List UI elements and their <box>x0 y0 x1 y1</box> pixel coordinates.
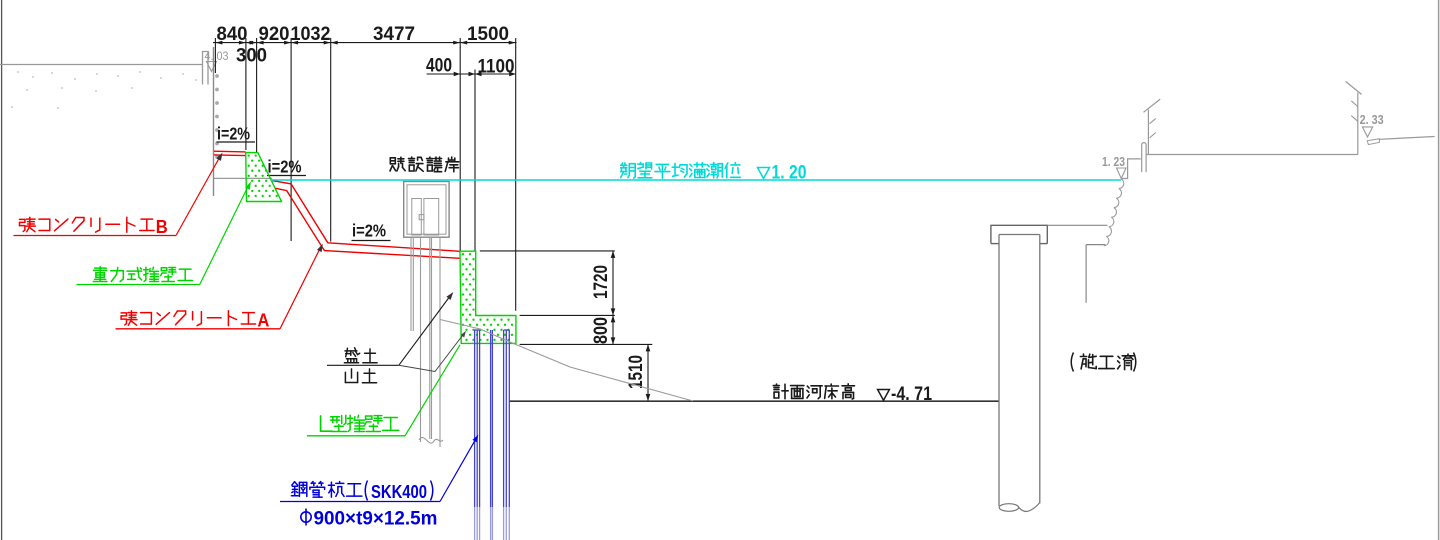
svg-text:i=2%: i=2% <box>268 157 302 177</box>
svg-text:A: A <box>257 310 269 331</box>
svg-text:900×t9×12.5m: 900×t9×12.5m <box>314 509 438 530</box>
svg-text:1032: 1032 <box>291 24 331 45</box>
svg-text:840: 840 <box>217 24 248 45</box>
svg-text:B: B <box>156 216 168 237</box>
svg-text:i=2%: i=2% <box>217 124 250 144</box>
svg-text:1720: 1720 <box>591 265 612 299</box>
svg-text:1. 20: 1. 20 <box>772 163 807 184</box>
svg-text:-4. 71: -4. 71 <box>891 384 932 405</box>
svg-text:300: 300 <box>236 46 267 67</box>
svg-text:1100: 1100 <box>478 57 515 78</box>
svg-text:4. 03: 4. 03 <box>205 49 229 63</box>
svg-text:1. 23: 1. 23 <box>1102 155 1125 169</box>
svg-text:1500: 1500 <box>467 24 509 45</box>
svg-text:400: 400 <box>426 56 452 77</box>
svg-text:3477: 3477 <box>373 24 415 45</box>
svg-text:920: 920 <box>259 24 290 45</box>
svg-text:2. 33: 2. 33 <box>1360 113 1384 127</box>
svg-text:SKK400: SKK400 <box>371 482 427 502</box>
svg-text:i=2%: i=2% <box>352 221 386 241</box>
svg-text:800: 800 <box>591 317 612 344</box>
